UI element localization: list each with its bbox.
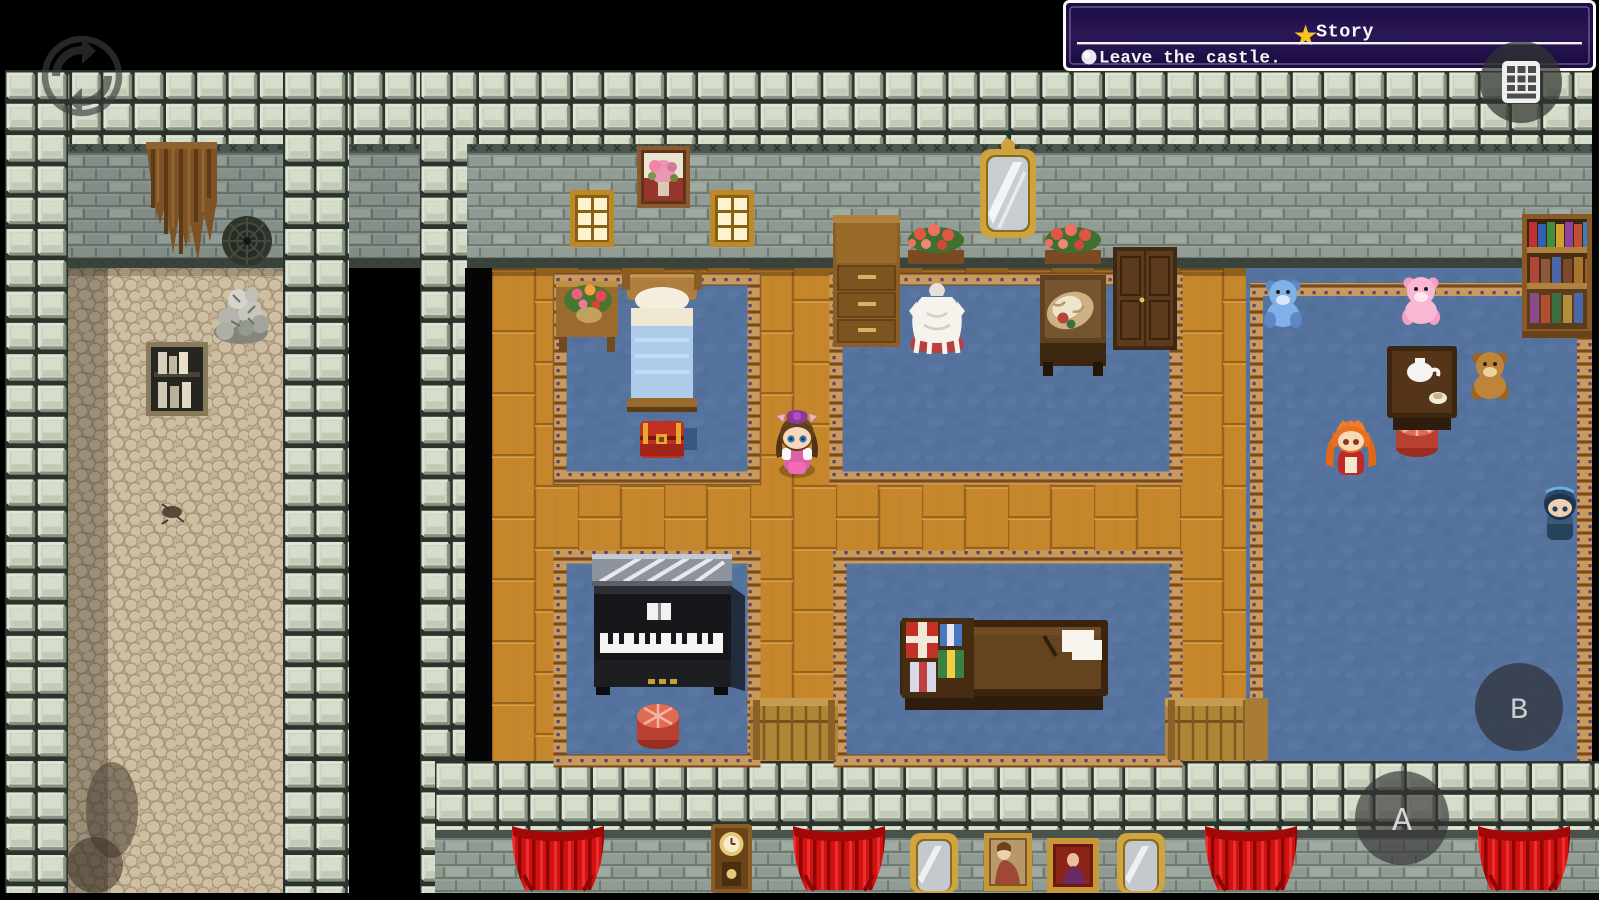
svg-text:Story: Story xyxy=(1316,22,1374,43)
svg-text:A: A xyxy=(1392,803,1412,840)
svg-text:Leave the castle.: Leave the castle. xyxy=(1099,49,1281,69)
svg-text:B: B xyxy=(1510,694,1528,728)
